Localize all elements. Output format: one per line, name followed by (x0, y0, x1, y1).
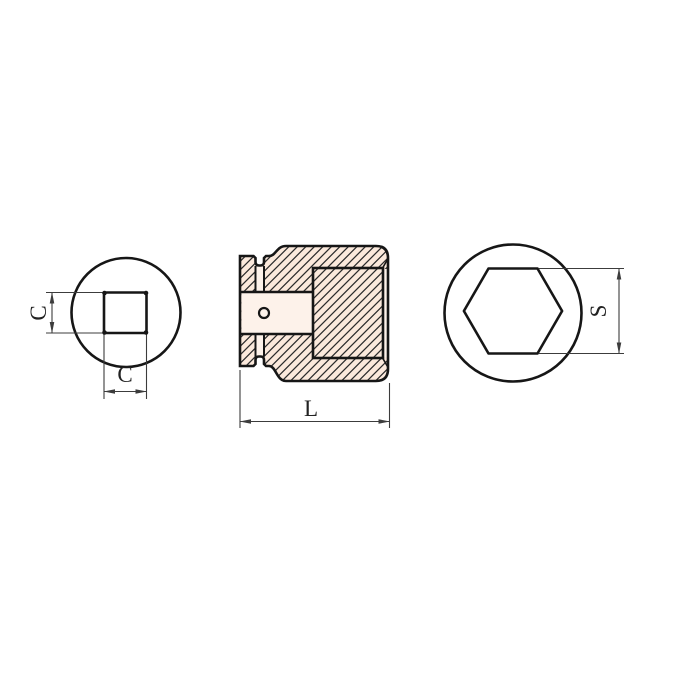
hex-socket-hole (464, 269, 562, 354)
dim-c-height-label: C (26, 305, 51, 320)
groove-strip-top (256, 266, 265, 293)
drive-hole-band (241, 292, 313, 334)
square-drive-hole (104, 293, 147, 334)
technical-drawing-page: C C (0, 0, 700, 700)
socket-end-view: S (445, 245, 625, 382)
groove-strip-bottom (256, 334, 265, 357)
drive-end-outer-circle (72, 258, 181, 367)
dim-l-label: L (304, 396, 318, 421)
drive-end-view: C C (26, 258, 181, 399)
section-view: L (240, 246, 390, 428)
socket-drawing-canvas: C C (0, 0, 700, 700)
dim-c-width-label: C (117, 362, 132, 387)
dim-s-label: S (586, 305, 611, 318)
square-corner-radii (102, 291, 148, 335)
dim-c-height: C (26, 293, 103, 334)
